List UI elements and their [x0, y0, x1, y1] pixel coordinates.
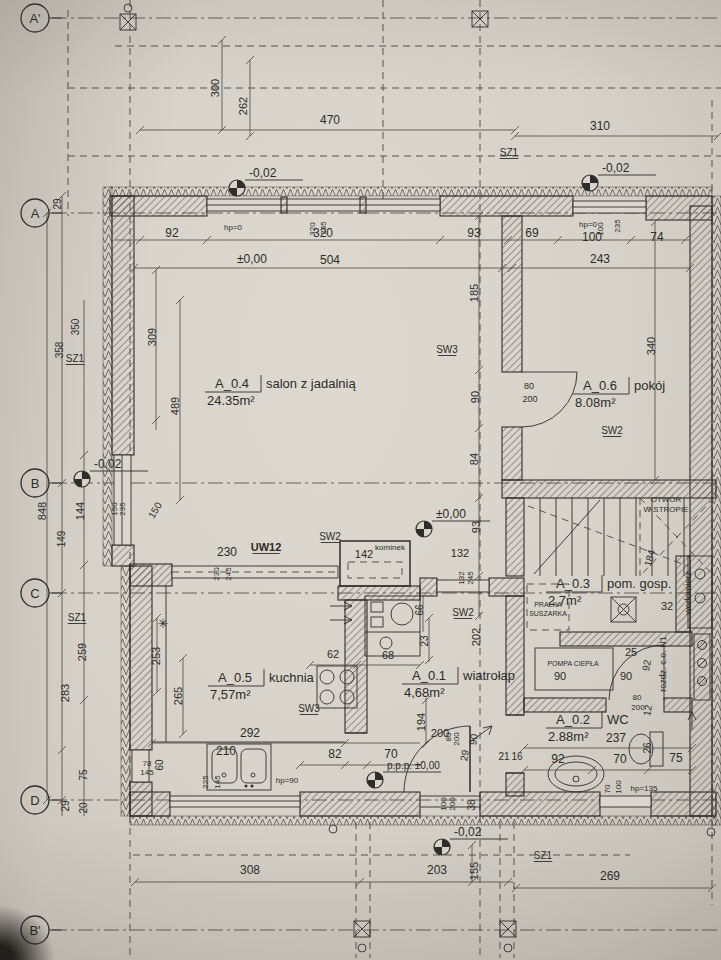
dim-label: SW2: [452, 607, 474, 618]
dim-label: SZ1: [68, 612, 87, 623]
room-area: 7,57m²: [210, 687, 251, 702]
room-area: 24.35m²: [207, 393, 255, 408]
dim-label: 504: [320, 253, 340, 267]
room-area: 2.88m²: [548, 729, 589, 744]
grid-axis-B: B: [21, 469, 62, 497]
room-label: A_0.1wiatrołap4,68m²: [402, 667, 515, 700]
dim-label: 358: [54, 341, 65, 358]
wall-insulation: [103, 187, 721, 825]
dim-label: 25: [625, 646, 637, 658]
dim-label: wodomierz: [683, 571, 693, 616]
dim-label: 29: [458, 749, 471, 762]
dim-label: SW3: [436, 344, 458, 355]
dim-label: 149: [56, 530, 67, 547]
dim-label: 93: [467, 226, 481, 240]
dim-label: 92: [640, 659, 653, 672]
room-name: salon z jadalnią: [266, 376, 356, 391]
dim-label: 203: [427, 863, 447, 877]
dim-label: 29: [60, 800, 71, 812]
dim-label: 340: [645, 337, 657, 355]
dim-label: 82: [328, 747, 342, 761]
dim-label: 80: [524, 381, 534, 391]
dim-label: W STROPIE: [644, 505, 689, 514]
dim-label: 32: [661, 600, 673, 612]
kitchen-counter: [152, 586, 345, 742]
dim-label: SW2: [601, 425, 623, 436]
dim-label: 230: [212, 567, 221, 581]
room-id: A_0.5: [218, 670, 252, 685]
level-value: -0,02: [249, 166, 277, 180]
dim-label: UW12: [251, 541, 282, 553]
dim-label: 489: [169, 397, 181, 415]
level-value: -0,02: [454, 825, 482, 839]
dim-label: 245: [466, 571, 475, 585]
dim-label: 68: [382, 649, 394, 661]
room-name: pom. gosp.: [607, 576, 671, 591]
dim-label: 26: [642, 742, 653, 754]
level-marker-icon: -0,02: [434, 825, 508, 855]
dim-label: 20: [78, 802, 89, 814]
dim-label: 155: [468, 862, 480, 880]
room-label: A_0.4salon z jadalnią24.35m²: [205, 375, 356, 408]
room-name: pokój: [634, 378, 665, 393]
dim-label: SZ1: [534, 850, 553, 861]
room-label: A_0.3pom. gosp.2,7m²: [546, 575, 671, 608]
dim-label: 253: [150, 647, 162, 665]
level-marker-icon: -0,02: [582, 161, 656, 191]
room-area: 4,68m²: [404, 685, 445, 700]
room-label: A_0.5kuchnia7,57m²: [208, 669, 315, 702]
level-value: -0,02: [602, 161, 630, 175]
grid-axis-B-prime: B': [21, 916, 62, 944]
level-value: ±0,00: [436, 507, 466, 521]
dim-label: 200: [452, 732, 461, 746]
dim-label: 309: [146, 328, 158, 346]
dim-label: 259: [76, 643, 88, 661]
dim-label: 23: [419, 635, 430, 647]
floor-plan-photo: -0,02-0,02-0,02±0,00p.p.p. ±0,00-0,02 A_…: [0, 0, 721, 960]
dim-label: 92: [165, 226, 179, 240]
dim-label: 16: [511, 751, 523, 762]
heat-pump: [535, 648, 613, 690]
dim-label: 132: [451, 547, 469, 559]
dim-label: hp=135: [631, 784, 658, 793]
dim-label: 269: [600, 869, 620, 883]
dim-label: 320: [313, 226, 333, 240]
dim-label: hp=90: [276, 776, 299, 785]
dim-label: 70: [603, 784, 612, 793]
dim-label: 78: [143, 759, 152, 768]
grid-axis-label: A': [29, 11, 40, 26]
grid-axis-label: D: [30, 793, 39, 808]
dim-label: 470: [320, 113, 340, 127]
dim-label: 200: [522, 394, 537, 404]
dim-label: 142: [355, 548, 373, 560]
dim-label: 90: [554, 670, 566, 682]
dim-label: 21: [498, 751, 510, 762]
dim-label: 237: [606, 731, 626, 745]
dim-label: 92: [551, 752, 565, 766]
dim-label: 69: [525, 226, 539, 240]
dim-label: 262: [237, 97, 249, 115]
dim-label: 292: [240, 726, 260, 740]
dim-label: 235: [613, 219, 622, 233]
dim-label: SZ1: [66, 353, 85, 364]
dim-label: 90: [620, 670, 632, 682]
room-name: WC: [607, 712, 629, 727]
grid-axis-A-prime: A': [21, 4, 62, 32]
dim-label: 90: [469, 391, 481, 403]
dim-label: SW3: [298, 703, 320, 714]
dim-label: 145: [213, 775, 222, 789]
dim-label: ✳: [158, 616, 169, 631]
room-name: wiatrołap: [462, 668, 515, 683]
dim-label: 243: [590, 252, 610, 266]
dim-label: 310: [590, 119, 610, 133]
dim-label: rozdz. c.o. N1: [658, 636, 668, 692]
room-id: A_0.3: [556, 576, 590, 591]
dim-label: PRALKA: [534, 601, 562, 608]
dim-label: 100: [614, 780, 623, 794]
level-value: -0,02: [94, 457, 122, 471]
dim-label: 144: [74, 502, 86, 520]
dim-label: 200: [631, 703, 645, 712]
dim-label: 60: [154, 759, 165, 771]
dim-label: 74: [650, 230, 664, 244]
dim-label: 194: [415, 713, 427, 731]
dim-label: 75: [78, 769, 89, 781]
room-id: A_0.6: [583, 378, 617, 393]
dim-label: 283: [59, 684, 71, 702]
dim-label: ±0,00: [237, 252, 267, 266]
dim-label: 200: [448, 797, 457, 811]
dim-label: 265: [172, 687, 184, 705]
dim-label: kominek: [375, 543, 406, 552]
grid-axis-bubbles: A'ABCDB': [21, 4, 62, 944]
dim-label: 38: [466, 799, 477, 811]
level-value: p.p.p. ±0,00: [387, 760, 440, 771]
room-id: A_0.1: [412, 668, 446, 683]
dim-label: 150: [146, 500, 164, 520]
dim-label: 90: [467, 733, 480, 746]
grid-axis-C: C: [21, 579, 62, 607]
room-id: A_0.2: [556, 712, 590, 727]
dim-label: 848: [36, 502, 48, 520]
floor-drain-icon: [611, 597, 636, 622]
grid-axis-D: D: [21, 786, 62, 814]
dim-label: OTWÓR: [651, 495, 682, 504]
dim-label: 80: [633, 693, 642, 702]
level-marker-icon: p.p.p. ±0,00: [367, 760, 441, 788]
kitchen-appliance-block: [365, 596, 420, 656]
dim-label: 132: [457, 571, 466, 585]
room-label: A_0.6pokój8.08m²: [573, 377, 665, 410]
grid-axis-label: A: [31, 206, 40, 221]
dim-label: 93: [470, 521, 482, 533]
floor-plan-canvas: -0,02-0,02-0,02±0,00p.p.p. ±0,00-0,02 A_…: [0, 0, 721, 960]
room-id: A_0.4: [215, 376, 249, 391]
dim-label: 29: [52, 198, 63, 210]
grid-axis-label: C: [30, 586, 39, 601]
grid-axis-label: B: [31, 476, 40, 491]
dim-label: 230: [217, 545, 237, 559]
room-name: kuchnia: [269, 670, 315, 685]
room-area: 8.08m²: [575, 395, 616, 410]
dim-label: 75: [669, 751, 683, 765]
dim-label: 245: [224, 567, 233, 581]
dim-label: 350: [70, 318, 81, 335]
dim-label: 70: [613, 752, 627, 766]
dim-label: POMPA CIEPŁA: [547, 660, 599, 667]
dim-label: 300: [209, 79, 221, 97]
dim-label: 225: [201, 775, 210, 789]
dim-label: 100: [582, 230, 602, 244]
dim-label: 235: [118, 502, 127, 516]
grid-axis-label: B': [29, 923, 40, 938]
dim-label: 202: [470, 628, 482, 646]
dim-label: 210: [216, 744, 236, 758]
dim-label: 70: [384, 747, 398, 761]
dim-label: SZ1: [500, 147, 519, 158]
dim-label: 145: [140, 768, 154, 777]
dim-label: 185: [468, 284, 480, 302]
dim-label: 308: [240, 863, 260, 877]
dim-label: 62: [327, 648, 339, 660]
dim-label: hp=0: [224, 223, 243, 232]
dim-label: SUSZARKA: [529, 610, 567, 617]
dim-label: hp=0: [579, 220, 598, 229]
dim-label: 66: [414, 604, 425, 616]
dim-label: 184: [642, 548, 657, 567]
dim-label: SW2: [319, 531, 341, 542]
dim-label: 100: [439, 797, 448, 811]
dim-label: 84: [468, 453, 480, 465]
